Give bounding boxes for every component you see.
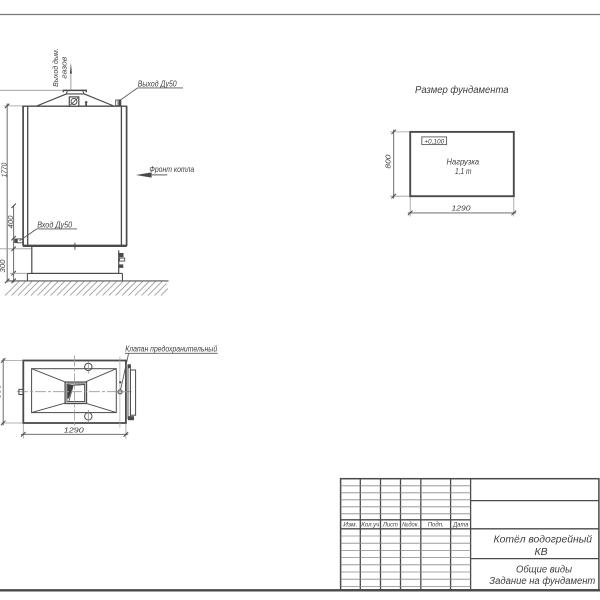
svg-text:Подп.: Подп. bbox=[428, 522, 444, 529]
svg-text:КВ: КВ bbox=[535, 547, 549, 558]
svg-text:1290: 1290 bbox=[64, 426, 85, 435]
svg-text:Размер фундамента: Размер фундамента bbox=[415, 85, 509, 96]
svg-text:Общие виды: Общие виды bbox=[516, 564, 572, 575]
svg-text:Нагрузка: Нагрузка bbox=[447, 156, 480, 166]
svg-text:400: 400 bbox=[6, 216, 15, 229]
svg-text:Кол.уч: Кол.уч bbox=[361, 522, 380, 529]
svg-text:800: 800 bbox=[0, 384, 3, 399]
svg-text:Фронт котла: Фронт котла bbox=[149, 165, 194, 174]
svg-text:Изм.: Изм. bbox=[343, 522, 357, 529]
svg-text:1,1 т: 1,1 т bbox=[455, 166, 472, 176]
svg-text:Клапан предохранительный: Клапан предохранительный bbox=[125, 345, 217, 354]
svg-text:№док.: №док. bbox=[402, 522, 419, 529]
svg-text:+0,100: +0,100 bbox=[424, 138, 444, 145]
svg-text:Задание на фундамент: Задание на фундамент bbox=[489, 576, 595, 587]
svg-text:Лист: Лист bbox=[382, 522, 398, 529]
svg-text:300: 300 bbox=[0, 260, 7, 273]
svg-text:800: 800 bbox=[384, 154, 393, 169]
svg-text:1290: 1290 bbox=[452, 203, 472, 212]
svg-text:1770: 1770 bbox=[0, 163, 9, 178]
svg-text:Вход Ду50: Вход Ду50 bbox=[37, 221, 72, 230]
svg-text:Дата: Дата bbox=[452, 522, 469, 529]
svg-text:газов: газов bbox=[59, 56, 68, 78]
svg-text:Выход Ду50: Выход Ду50 bbox=[138, 80, 177, 89]
svg-text:Котёл водогрейный: Котёл водогрейный bbox=[494, 534, 593, 545]
